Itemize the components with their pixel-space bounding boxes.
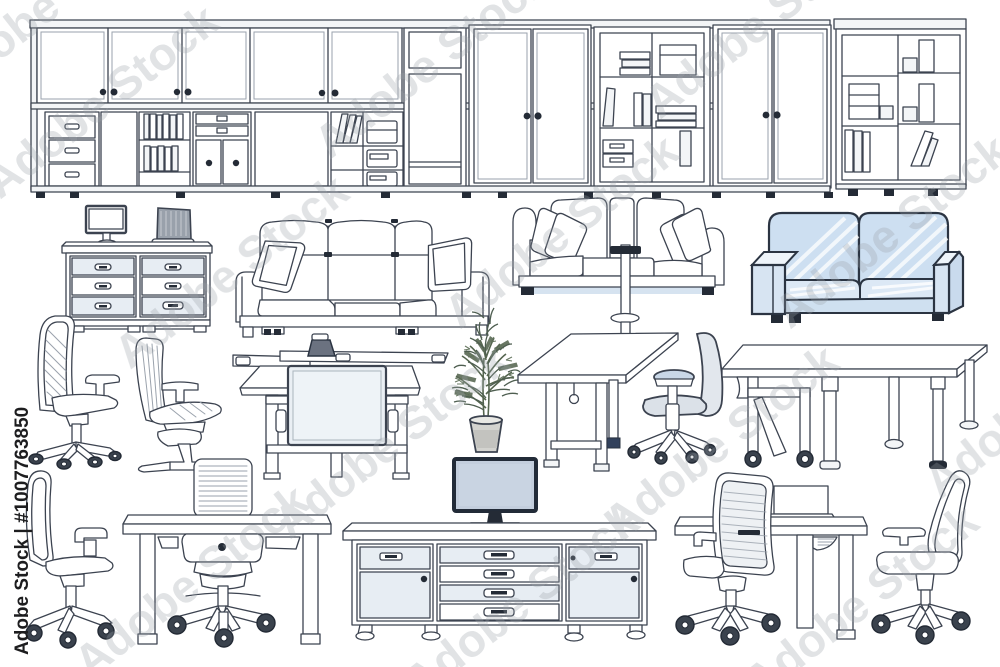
svg-text:Adobe Stock | #1007763850: Adobe Stock | #1007763850 [12, 407, 33, 655]
